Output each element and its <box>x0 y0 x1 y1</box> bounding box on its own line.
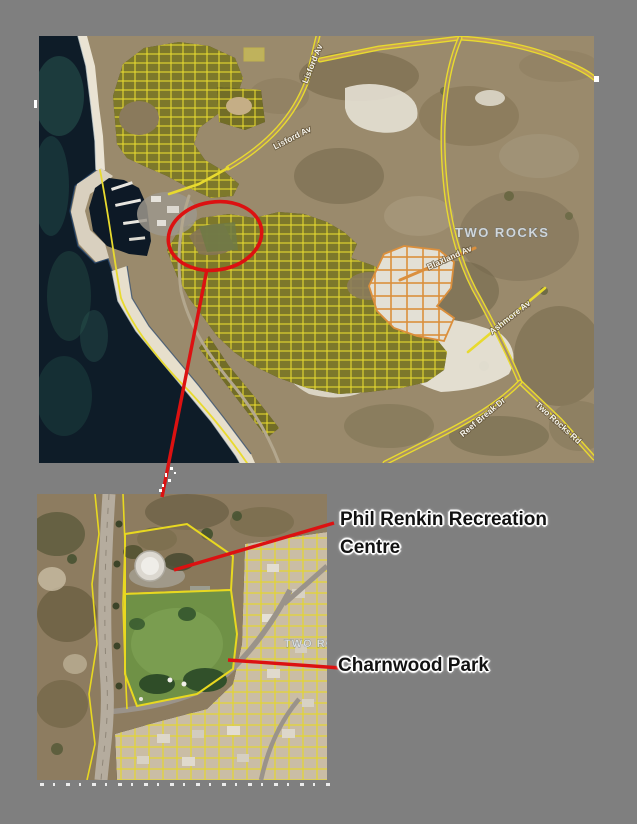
recreation-centre-label-line2: Centre <box>340 534 547 562</box>
left-edge-artifact <box>34 100 37 108</box>
edge-artifacts <box>159 467 176 492</box>
figure-canvas: TWO ROCKS Lisford Av Lisford Av Blaxland… <box>0 0 637 824</box>
right-edge-artifact <box>594 76 599 82</box>
recreation-centre-label-line1: Phil Renkin Recreation <box>340 506 547 534</box>
recreation-centre-label: Phil Renkin Recreation Centre <box>340 506 547 562</box>
main-map: TWO ROCKS Lisford Av Lisford Av Blaxland… <box>39 36 594 463</box>
inset-place-label: TWO RO <box>284 638 327 650</box>
inset-map: TWO RO <box>37 494 327 780</box>
bottom-speck-artifacts <box>40 783 330 786</box>
charnwood-park-label: Charnwood Park <box>338 652 489 680</box>
charnwood-park-area <box>125 590 237 706</box>
place-label-two-rocks: TWO ROCKS <box>455 225 549 240</box>
